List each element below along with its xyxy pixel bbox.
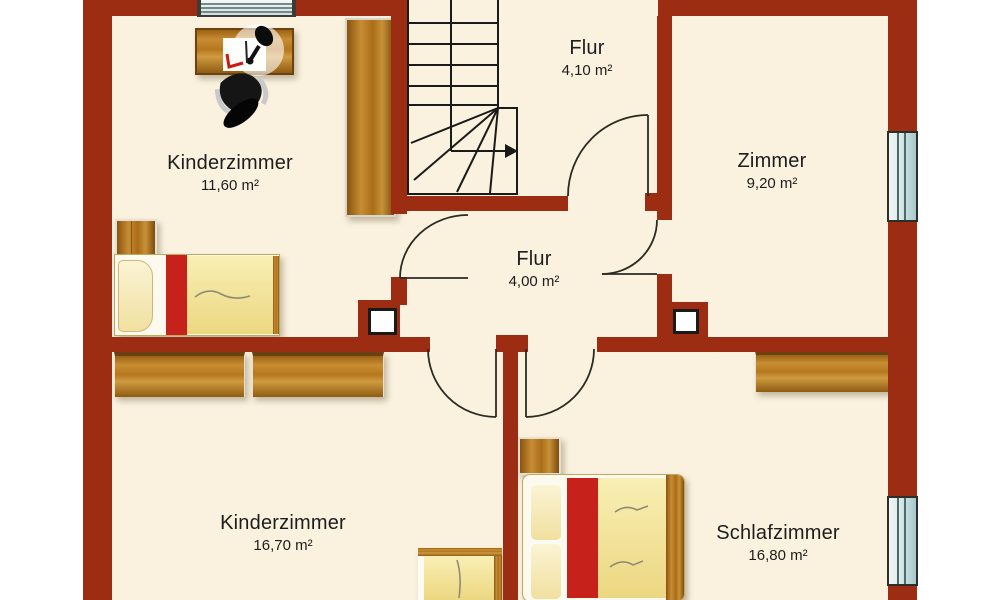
bed-pillow bbox=[118, 260, 153, 332]
bed-blanket-stripe bbox=[567, 478, 598, 598]
bed-blanket bbox=[424, 556, 494, 600]
window-glazing-line bbox=[897, 498, 899, 584]
room-area: 9,20 m² bbox=[738, 175, 807, 192]
bed-child-room-top bbox=[114, 254, 280, 336]
window-glazing-line bbox=[201, 11, 292, 13]
window-glazing-line bbox=[897, 133, 899, 220]
room-label-flur-top: Flur 4,10 m² bbox=[562, 38, 613, 79]
bed-pillow-1 bbox=[529, 483, 563, 542]
room-area: 16,80 m² bbox=[716, 547, 840, 564]
wall-mid-right bbox=[597, 337, 917, 352]
wardrobe-tall bbox=[345, 18, 396, 217]
room-name: Flur bbox=[509, 249, 560, 270]
bed-blanket bbox=[598, 478, 666, 598]
wall-door-stub-top bbox=[645, 193, 657, 211]
room-name: Schlafzimmer bbox=[716, 523, 840, 544]
room-name: Kinderzimmer bbox=[220, 513, 346, 534]
window-top bbox=[197, 0, 296, 17]
sideboard-right bbox=[252, 352, 384, 397]
room-label-flur-mid: Flur 4,00 m² bbox=[509, 249, 560, 290]
wall-left bbox=[83, 0, 112, 600]
window-zimmer bbox=[887, 131, 918, 222]
room-area: 4,00 m² bbox=[509, 273, 560, 290]
chimney-shaft-icon bbox=[673, 309, 699, 334]
bed-pillow-2 bbox=[529, 542, 563, 600]
room-label-zimmer: Zimmer 9,20 m² bbox=[738, 151, 807, 192]
room-area: 4,10 m² bbox=[562, 62, 613, 79]
room-name: Flur bbox=[562, 38, 613, 59]
wall-top-right bbox=[658, 0, 917, 16]
sideboard-left bbox=[114, 352, 245, 397]
room-name: Kinderzimmer bbox=[167, 153, 293, 174]
room-label-schlafzimmer: Schlafzimmer 16,80 m² bbox=[716, 523, 840, 564]
double-bed bbox=[522, 474, 685, 600]
window-glazing-line bbox=[904, 133, 906, 220]
room-area: 16,70 m² bbox=[220, 537, 346, 554]
desk-paper bbox=[223, 38, 266, 71]
bed-head-board bbox=[418, 548, 502, 556]
nightstand-divider bbox=[131, 221, 132, 255]
room-label-kinderzimmer-bottom: Kinderzimmer 16,70 m² bbox=[220, 513, 346, 554]
bed-foot-board bbox=[666, 475, 684, 600]
room-label-kinderzimmer-top: Kinderzimmer 11,60 m² bbox=[167, 153, 293, 194]
wall-stair-left-upper bbox=[391, 16, 407, 214]
window-schlafzimmer bbox=[887, 496, 918, 586]
room-name: Zimmer bbox=[738, 151, 807, 172]
wall-mid-left bbox=[83, 337, 430, 352]
chimney-shaft-icon bbox=[368, 308, 397, 335]
bed-side-board bbox=[494, 556, 502, 600]
wall-bottom-center bbox=[503, 350, 518, 600]
bed-foot-board bbox=[273, 256, 279, 334]
room-area: 11,60 m² bbox=[167, 177, 293, 194]
nightstand-schlafzimmer bbox=[518, 437, 561, 475]
nightstand-child-room bbox=[115, 219, 157, 257]
bed-blanket-stripe bbox=[166, 255, 187, 335]
desk bbox=[195, 28, 294, 75]
bed-child-room-bottom bbox=[418, 548, 502, 600]
wall-stair-bottom bbox=[400, 196, 568, 211]
window-glazing-line bbox=[201, 7, 292, 9]
wall-top-mid bbox=[296, 0, 407, 16]
bed-blanket bbox=[187, 256, 273, 334]
sideboard-schlafzimmer bbox=[755, 351, 890, 392]
window-glazing-line bbox=[201, 3, 292, 5]
wall-zimmer-upper bbox=[657, 16, 672, 220]
window-glazing-line bbox=[904, 498, 906, 584]
floorplan-canvas: Kinderzimmer 11,60 m² Flur 4,10 m² Zimme… bbox=[0, 0, 1000, 600]
